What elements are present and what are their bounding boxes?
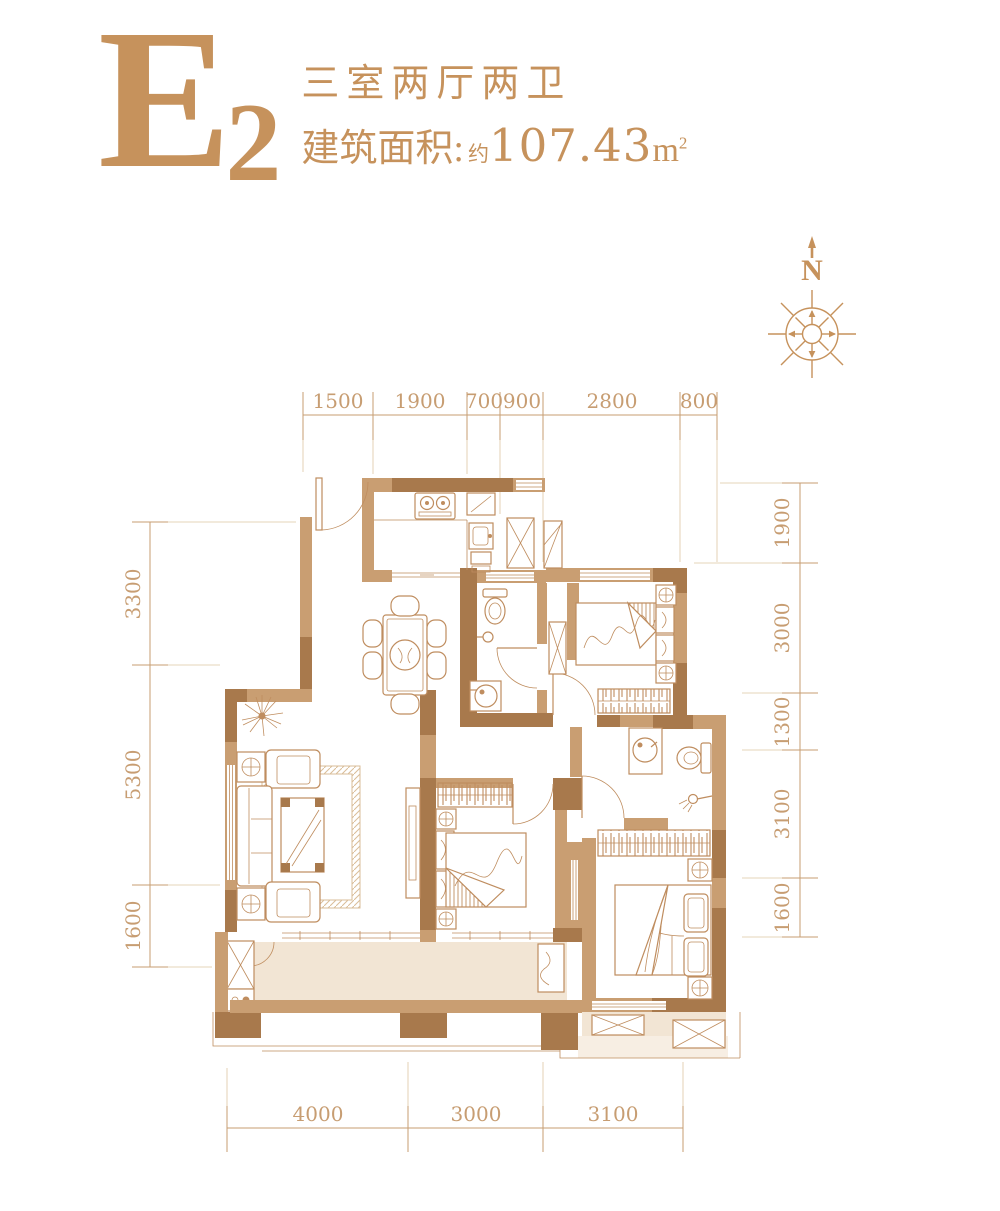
window [486,572,534,581]
dim-top-2: 700 [465,389,503,413]
floor-plan-drawing: N 1500 1900 700 900 2800 800 [0,0,1000,1211]
duct-shaft [549,622,566,674]
nightstand-icon [688,859,712,881]
armchair-icon [266,882,320,922]
toilet-icon [483,589,507,624]
stove-icon [415,493,455,519]
faucet-icon [477,632,493,642]
bed-icon [446,833,526,907]
kitchen [374,493,495,572]
dim-top-1: 1900 [395,389,446,413]
living-room [237,695,420,922]
window [571,860,578,920]
window [592,1001,666,1010]
shoe-cabinet [538,944,564,992]
nightstand-icon [688,977,712,999]
compass-icon: N [768,236,856,378]
dim-top-5: 800 [680,389,718,413]
sink-icon [629,728,662,774]
nightstand-icon [656,585,676,605]
window [580,570,650,580]
bedroom-2 [436,783,526,929]
washing-machine-icon [227,941,254,989]
wardrobe-icon [598,830,710,856]
dim-top-0: 1500 [313,389,364,413]
bathroom-1 [470,589,566,711]
master-bedroom [598,830,712,999]
cushion-icon [656,607,674,661]
bed-icon [576,603,656,665]
coffee-table-icon [281,798,324,872]
balcony [227,931,567,1011]
dim-right-3: 3100 [770,789,794,840]
tv-cabinet-icon [406,788,420,898]
wardrobe-icon [598,689,670,713]
side-table-icon [237,888,265,920]
dim-left-2: 1600 [121,901,145,952]
kitchen-sink-icon [469,523,493,549]
nightstand-icon [656,663,676,683]
toilet-icon [677,743,711,773]
sofa-icon [237,786,272,886]
dim-left-0: 3300 [121,569,145,620]
water-heater-icon [507,518,534,568]
window [227,765,235,880]
duct-shaft [544,521,562,568]
dim-right-4: 1600 [770,883,794,934]
dining-table-icon [383,615,427,695]
dimension-bottom: 4000 3000 3100 [227,1062,683,1152]
wardrobe-icon [438,783,512,807]
side-table-icon [237,752,265,782]
dim-bottom-1: 3000 [451,1102,502,1126]
dim-top-3: 900 [503,389,541,413]
dim-right-1: 3000 [770,603,794,654]
bathroom2-door-arc [582,776,624,818]
bed-icon [615,885,711,976]
dim-bottom-2: 3100 [588,1102,639,1126]
window [516,480,542,490]
kitchen-sliding-door [392,573,460,577]
nightstand-icon [436,909,456,929]
floor-plan-page: E 2 三室两厅两卫 建筑面积: 约 107.43 m2 [0,0,1000,1211]
sink-icon [470,681,501,711]
kitchen-counter [374,520,467,570]
nightstand-icon [436,809,456,829]
utility-alcove [507,518,562,568]
shower-icon [679,795,712,813]
ac-unit-icon [673,1020,725,1048]
dim-right-2: 1300 [770,697,794,748]
bedroom2-door-arc [513,784,553,824]
bedroom-1 [576,585,676,713]
compass-north-label: N [801,254,823,287]
bathroom-2 [629,728,712,812]
armchair-icon [266,750,320,788]
entry-door-arc [316,478,368,530]
exterior-platforms [213,1010,740,1058]
dim-right-0: 1900 [770,498,794,549]
windows [227,480,666,1010]
ac-unit-icon [592,1015,644,1035]
dim-bottom-0: 4000 [293,1102,344,1126]
fridge-icon [467,493,495,515]
bathroom1-door-arc [497,648,537,688]
dim-top-4: 2800 [587,389,638,413]
dim-left-1: 5300 [121,750,145,801]
bedroom1-door-arc [553,673,595,715]
